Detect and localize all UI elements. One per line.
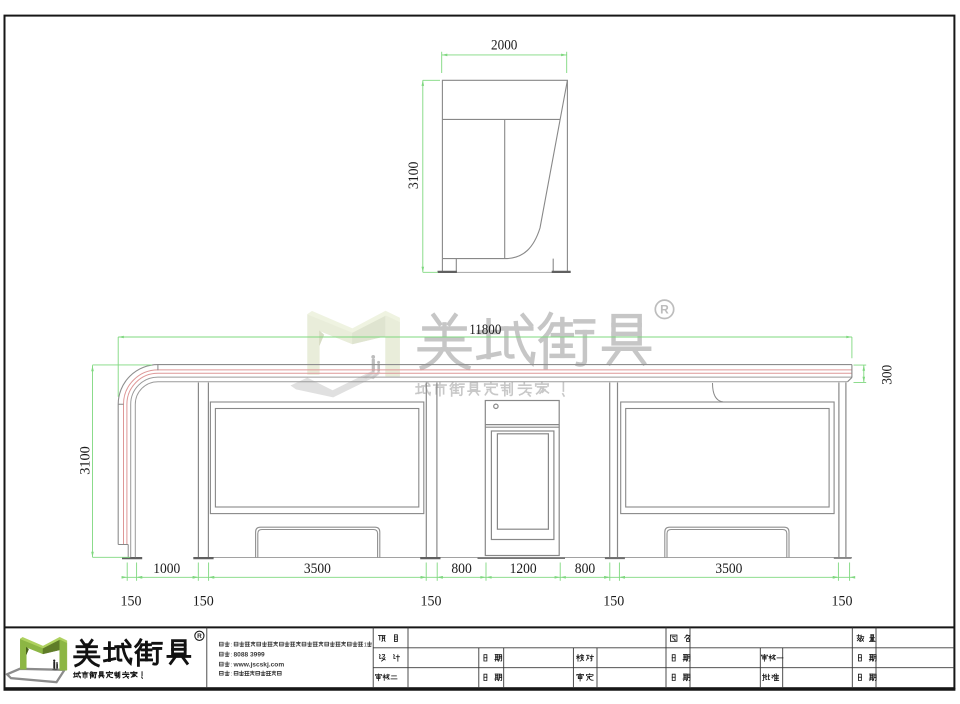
svg-text:3500: 3500 — [715, 561, 742, 577]
svg-text:R: R — [197, 633, 202, 640]
svg-text:150: 150 — [193, 594, 214, 610]
svg-text:150: 150 — [603, 594, 624, 610]
svg-text::: : — [231, 662, 233, 668]
svg-text:1200: 1200 — [510, 561, 537, 577]
svg-text:3100: 3100 — [77, 446, 93, 475]
svg-text:300: 300 — [879, 365, 895, 385]
svg-text::: : — [231, 672, 233, 678]
svg-text:150: 150 — [121, 594, 142, 610]
svg-text:150: 150 — [832, 594, 853, 610]
svg-text:www.jscskj.com: www.jscskj.com — [233, 662, 285, 669]
svg-text:11800: 11800 — [469, 322, 501, 338]
svg-text::: : — [231, 642, 233, 648]
svg-text:3500: 3500 — [304, 561, 331, 577]
svg-text::: : — [231, 652, 233, 658]
svg-text:R: R — [660, 303, 669, 317]
svg-text:8088 3999: 8088 3999 — [234, 652, 266, 659]
svg-text:3100: 3100 — [406, 162, 422, 190]
svg-text:1000: 1000 — [153, 561, 180, 577]
svg-text:800: 800 — [451, 561, 472, 577]
svg-text:150: 150 — [421, 594, 442, 610]
svg-text:1: 1 — [364, 642, 367, 648]
svg-text:2000: 2000 — [491, 38, 517, 54]
svg-text:800: 800 — [575, 561, 596, 577]
